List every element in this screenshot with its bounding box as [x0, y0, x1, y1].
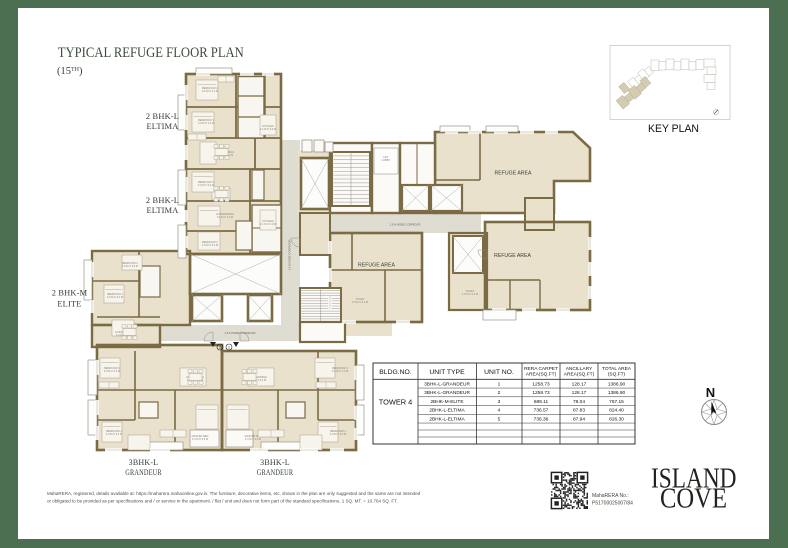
svg-text:2.1 M X 3.0 M: 2.1 M X 3.0 M: [260, 127, 276, 131]
svg-text:1.5 M X 2.4 M: 1.5 M X 2.4 M: [352, 300, 368, 304]
svg-text:2BHK-L-ELTIMA: 2BHK-L-ELTIMA: [429, 416, 465, 422]
svg-text:2 BHK-L: 2 BHK-L: [146, 196, 179, 205]
svg-text:UNIT NO.: UNIT NO.: [484, 369, 514, 376]
svg-text:ELTIMA: ELTIMA: [146, 206, 178, 215]
svg-text:3.6 M X 4.2 M: 3.6 M X 4.2 M: [217, 215, 233, 219]
svg-text:128.17: 128.17: [572, 381, 587, 387]
svg-text:1.8 M WIDE CORRIDOR: 1.8 M WIDE CORRIDOR: [224, 331, 255, 335]
svg-text:3.3 M X 3.4 M: 3.3 M X 3.4 M: [106, 432, 122, 436]
svg-text:3.0 M X 3.2 M: 3.0 M X 3.2 M: [332, 369, 348, 373]
svg-text:1.2 M WIDE CORRIDOR: 1.2 M WIDE CORRIDOR: [288, 239, 292, 270]
svg-text:3BHK-L-GRANDEUR: 3BHK-L-GRANDEUR: [424, 381, 470, 387]
svg-text:2: 2: [498, 390, 501, 396]
svg-text:2.9 M X 3.0 M: 2.9 M X 3.0 M: [122, 264, 138, 268]
svg-text:KEY PLAN: KEY PLAN: [648, 123, 699, 135]
svg-text:826.30: 826.30: [609, 416, 624, 422]
svg-text:3.0 M X 3.2 M: 3.0 M X 3.2 M: [198, 121, 214, 125]
svg-text:1.5 M WIDE CORRIDOR: 1.5 M WIDE CORRIDOR: [389, 223, 420, 227]
svg-text:1258.73: 1258.73: [532, 390, 550, 396]
svg-text:ELITE: ELITE: [57, 300, 81, 309]
svg-text:3.0 M X 3.2 M: 3.0 M X 3.2 M: [198, 183, 214, 187]
svg-text:GRANDEUR: GRANDEUR: [257, 468, 294, 477]
svg-text:5: 5: [498, 416, 501, 422]
svg-text:GRANDEUR: GRANDEUR: [125, 468, 162, 477]
svg-text:736.36: 736.36: [534, 416, 549, 422]
svg-text:REFUGE AREA: REFUGE AREA: [358, 263, 395, 269]
svg-text:3.3 M X 3.4 M: 3.3 M X 3.4 M: [330, 432, 346, 436]
svg-text:COVE: COVE: [660, 484, 727, 515]
svg-text:LOBBY: LOBBY: [382, 158, 391, 162]
svg-text:3.0 M X 3.2 M: 3.0 M X 3.2 M: [202, 243, 218, 247]
svg-text:87.83: 87.83: [573, 408, 585, 414]
svg-text:689.11: 689.11: [534, 399, 549, 405]
svg-text:3.3 M X 3.6 M: 3.3 M X 3.6 M: [245, 437, 261, 441]
svg-text:(SQ.FT): (SQ.FT): [608, 372, 626, 378]
svg-text:TOTAL AREA: TOTAL AREA: [602, 366, 632, 372]
svg-text:UNIT TYPE: UNIT TYPE: [429, 369, 465, 376]
svg-text:767.15: 767.15: [609, 399, 624, 405]
svg-text:3: 3: [498, 399, 501, 405]
svg-text:1: 1: [498, 381, 501, 387]
svg-text:MahaRERA No.:: MahaRERA No.:: [592, 493, 629, 499]
svg-text:RERA CARPET: RERA CARPET: [524, 366, 558, 372]
svg-text:4: 4: [498, 408, 501, 414]
svg-text:3BHK-L: 3BHK-L: [260, 458, 290, 467]
svg-text:BLDG.NO.: BLDG.NO.: [379, 369, 412, 376]
svg-text:TOWER 4: TOWER 4: [379, 398, 413, 407]
svg-text:ANCILLARY: ANCILLARY: [566, 366, 593, 372]
svg-text:3.0 M X 3.2 M: 3.0 M X 3.2 M: [202, 89, 218, 93]
svg-text:3.3 M X 3.6 M: 3.3 M X 3.6 M: [192, 437, 208, 441]
svg-text:N: N: [706, 385, 715, 400]
svg-text:824.40: 824.40: [609, 408, 624, 414]
svg-text:MahaRERA, registered, details: MahaRERA, registered, details available …: [47, 491, 421, 496]
svg-text:1386.90: 1386.90: [608, 381, 626, 387]
svg-text:2BHK-M-ELITE: 2BHK-M-ELITE: [430, 399, 463, 405]
svg-text:87.94: 87.94: [573, 416, 585, 422]
svg-text:AREA(SQ.FT): AREA(SQ.FT): [526, 372, 557, 378]
svg-text:1.5 M X 2.4 M: 1.5 M X 2.4 M: [462, 292, 478, 296]
svg-text:2BHK-L-ELTIMA: 2BHK-L-ELTIMA: [429, 408, 465, 414]
svg-text:3BHK-L-GRANDEUR: 3BHK-L-GRANDEUR: [424, 390, 470, 396]
svg-text:TYPICAL REFUGE FLOOR PLAN: TYPICAL REFUGE FLOOR PLAN: [58, 45, 244, 61]
svg-text:2 BHK-L: 2 BHK-L: [146, 112, 179, 121]
svg-text:REFUGE AREA: REFUGE AREA: [495, 171, 532, 177]
svg-text:1258.73: 1258.73: [532, 381, 550, 387]
svg-text:2: 2: [219, 346, 221, 350]
svg-text:128.17: 128.17: [572, 390, 587, 396]
svg-text:3.0 M X 3.2 M: 3.0 M X 3.2 M: [107, 295, 123, 299]
svg-text:3BHK-L: 3BHK-L: [129, 458, 159, 467]
svg-text:2.1 M X 3.0 M: 2.1 M X 3.0 M: [260, 222, 276, 226]
svg-text:or obligated to be provided as: or obligated to be provided as per speci…: [47, 499, 398, 504]
svg-text:AREA(SQ.FT): AREA(SQ.FT): [564, 372, 595, 378]
svg-text:ELTIMA: ELTIMA: [146, 122, 178, 131]
svg-text:1386.90: 1386.90: [608, 390, 626, 396]
svg-text:736.57: 736.57: [534, 408, 549, 414]
svg-text:1: 1: [228, 346, 230, 350]
svg-text:2 BHK-M: 2 BHK-M: [52, 289, 88, 298]
svg-text:(15TH): (15TH): [57, 66, 83, 77]
svg-text:P51700025007/84: P51700025007/84: [592, 501, 633, 507]
svg-text:78.04: 78.04: [573, 399, 585, 405]
svg-text:REFUGE AREA: REFUGE AREA: [494, 253, 531, 259]
svg-text:3.0 M X 3.2 M: 3.0 M X 3.2 M: [104, 369, 120, 373]
